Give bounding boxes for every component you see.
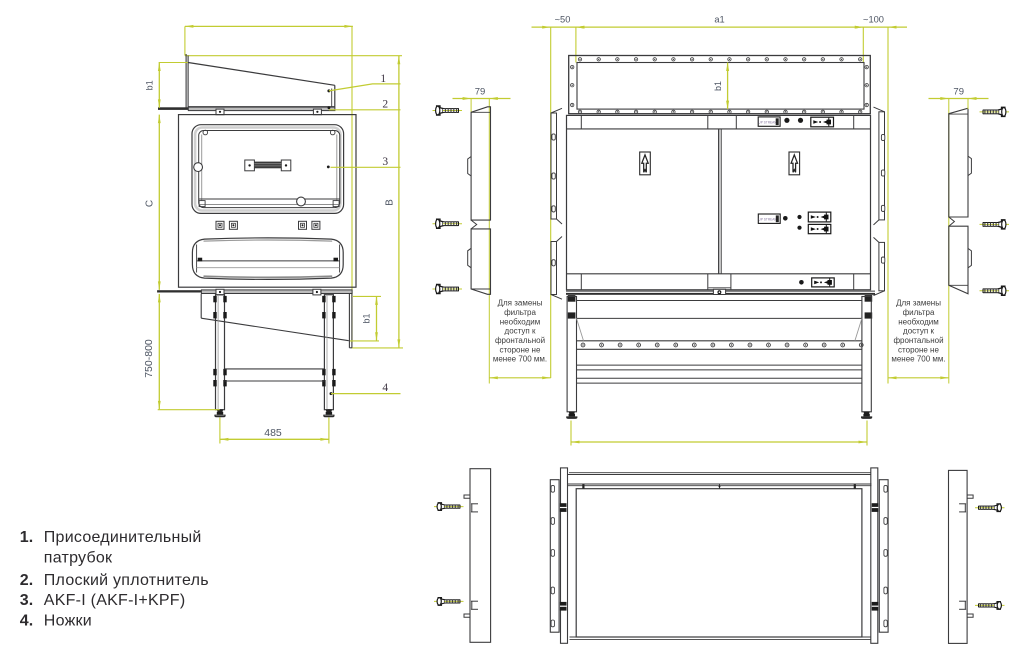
- svg-text:b1: b1: [145, 80, 155, 90]
- svg-text:фронтальной: фронтальной: [893, 336, 943, 345]
- svg-text:485: 485: [264, 427, 282, 439]
- svg-text:3.: 3.: [20, 592, 33, 609]
- svg-text:2: 2: [382, 99, 388, 111]
- svg-text:фильтра: фильтра: [903, 308, 935, 317]
- svg-text:стороне не: стороне не: [898, 345, 939, 354]
- svg-text:доступ к: доступ к: [505, 327, 536, 336]
- svg-text:фронтальной: фронтальной: [495, 336, 545, 345]
- svg-text:4.: 4.: [20, 612, 33, 629]
- svg-text:b1: b1: [713, 81, 723, 91]
- svg-text:стороне не: стороне не: [500, 345, 541, 354]
- svg-text:Ножки: Ножки: [44, 612, 92, 629]
- svg-text:C: C: [144, 200, 155, 207]
- svg-text:4: 4: [382, 382, 388, 394]
- svg-text:1: 1: [380, 73, 386, 85]
- svg-text:Для замены: Для замены: [896, 299, 941, 308]
- svg-text:79: 79: [953, 87, 964, 98]
- svg-text:b1: b1: [361, 313, 371, 323]
- svg-text:2.: 2.: [20, 572, 33, 589]
- svg-text:Плоский уплотнитель: Плоский уплотнитель: [44, 572, 209, 589]
- svg-text:фильтра: фильтра: [504, 308, 536, 317]
- svg-text:a1: a1: [714, 15, 724, 25]
- svg-text:~100: ~100: [863, 15, 884, 25]
- svg-text:79: 79: [475, 87, 486, 98]
- svg-text:менее 700 мм.: менее 700 мм.: [493, 355, 547, 364]
- svg-text:~50: ~50: [555, 15, 571, 25]
- svg-text:менее 700 мм.: менее 700 мм.: [891, 355, 945, 364]
- svg-text:доступ к: доступ к: [903, 327, 934, 336]
- svg-text:патрубок: патрубок: [44, 550, 113, 567]
- svg-text:UP STREAM: UP STREAM: [759, 218, 778, 222]
- svg-text:B: B: [384, 199, 395, 206]
- svg-text:необходим: необходим: [898, 317, 938, 326]
- svg-text:Присоединительный: Присоединительный: [44, 529, 202, 546]
- svg-text:750-800: 750-800: [143, 339, 155, 378]
- svg-text:1.: 1.: [20, 529, 33, 546]
- svg-text:AKF-I (AKF-I+KPF): AKF-I (AKF-I+KPF): [44, 592, 186, 609]
- svg-text:необходим: необходим: [500, 317, 540, 326]
- svg-text:3: 3: [382, 156, 388, 168]
- svg-text:UP STREAM: UP STREAM: [758, 121, 777, 125]
- svg-text:Для замены: Для замены: [498, 299, 543, 308]
